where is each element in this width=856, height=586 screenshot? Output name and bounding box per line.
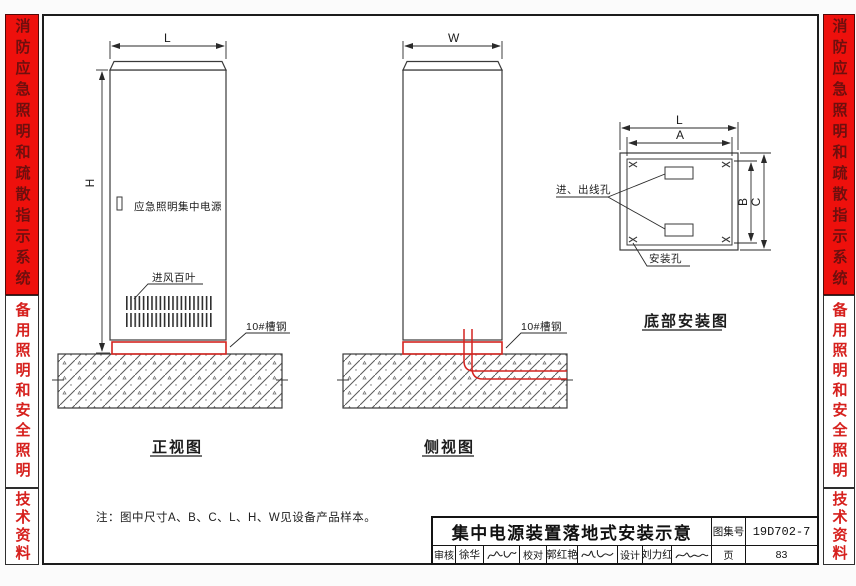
atlas-no-value: 19D702-7 (746, 518, 817, 546)
designer-name: 刘力红 (643, 546, 672, 563)
drawing-note: 注：图中尺寸A、B、C、L、H、W见设备产品样本。 (96, 509, 436, 525)
reviewer-name: 徐华 (456, 546, 484, 563)
side-concrete-base (343, 354, 567, 408)
bottom-dim-L: L (676, 113, 683, 127)
side-cabinet-cap (403, 62, 502, 71)
louver-band-1 (125, 296, 213, 310)
front-cabinet-cap (110, 62, 226, 71)
side-view-title: 侧视图 (424, 438, 475, 456)
page-number: 83 (746, 546, 817, 563)
front-channel-label: 10#槽钢 (246, 320, 287, 333)
front-channel-steel (112, 342, 226, 354)
front-view (52, 41, 290, 408)
front-dim-L: L (164, 31, 171, 45)
device-name-label: 应急照明集中电源 (134, 200, 222, 213)
bottom-view-title: 底部安装图 (644, 312, 729, 330)
bottom-dim-A: A (676, 128, 684, 142)
side-cabinet (403, 70, 502, 340)
page-label: 页 (712, 546, 746, 563)
side-dim-W: W (448, 31, 460, 45)
front-view-title: 正视图 (152, 438, 203, 456)
wire-hole-label: 进、出线孔 (556, 183, 611, 196)
bottom-dim-C: C (749, 197, 763, 206)
signature-scribble-3 (672, 547, 711, 563)
bottom-outer-rect (620, 153, 738, 250)
side-channel-label: 10#槽钢 (521, 320, 562, 333)
design-label: 设计 (618, 546, 643, 563)
louver-label: 进风百叶 (152, 272, 196, 284)
check-label: 校对 (520, 546, 547, 563)
side-view (337, 41, 573, 408)
designer-signature (672, 546, 712, 563)
reviewer-signature (484, 546, 520, 563)
signature-scribble-1 (484, 547, 519, 563)
review-label: 审核 (433, 546, 456, 563)
mount-hole-label: 安装孔 (649, 252, 682, 265)
checker-signature (578, 546, 618, 563)
sheet-title: 集中电源装置落地式安装示意 (433, 518, 712, 546)
atlas-no-label: 图集号 (712, 518, 746, 546)
checker-name: 郭红艳 (547, 546, 578, 563)
side-channel-steel (403, 342, 502, 354)
front-concrete-base (58, 354, 282, 408)
technical-drawing: L H 应急照明集中电源 进风百叶 10#槽钢 正视图 W 10#槽钢 侧视图 (0, 0, 856, 586)
title-block: 集中电源装置落地式安装示意 图集号 19D702-7 审核 徐华 校对 郭红艳 … (431, 516, 819, 565)
louver-band-2 (125, 313, 213, 327)
signature-scribble-2 (578, 547, 617, 563)
bottom-dim-B: B (736, 198, 750, 206)
front-dim-H: H (83, 179, 97, 188)
